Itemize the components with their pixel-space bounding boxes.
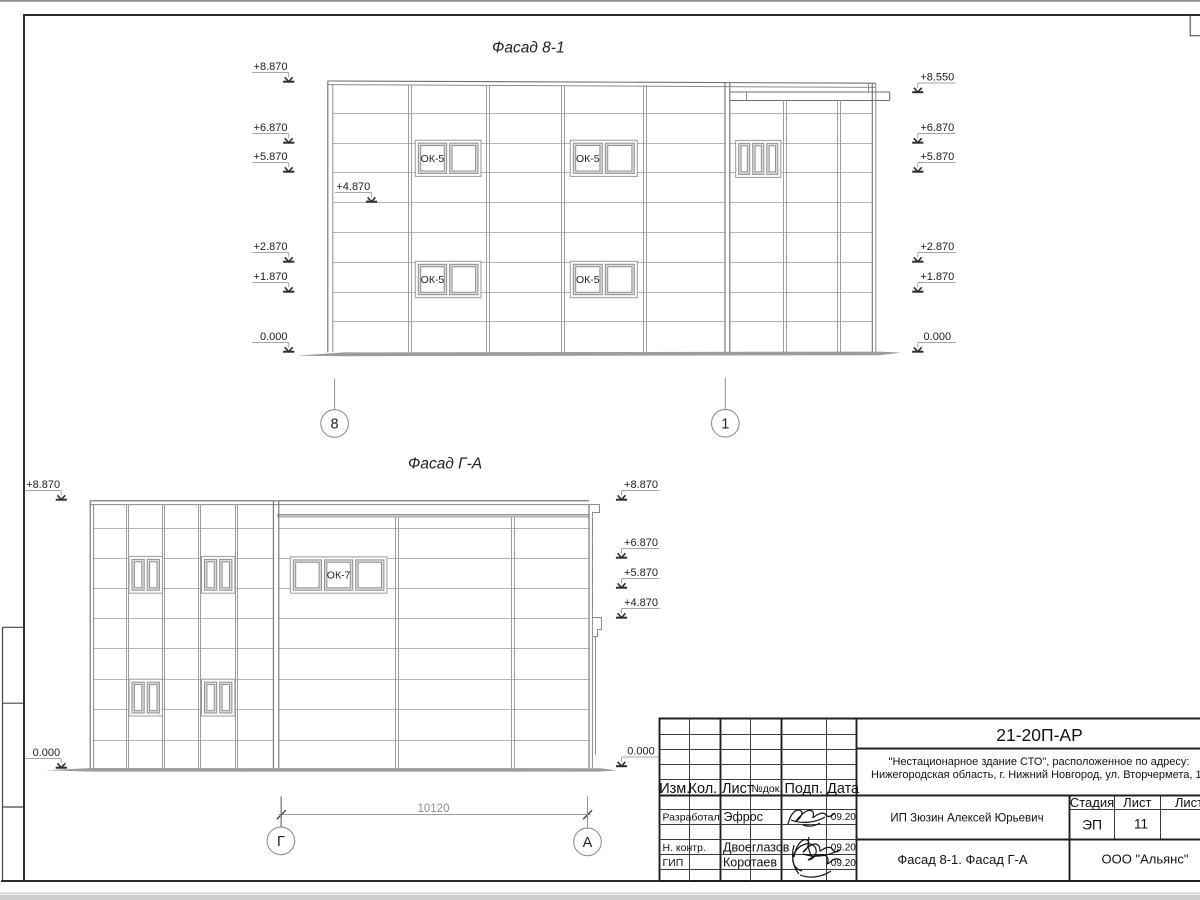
svg-text:ООО "Альянс": ООО "Альянс" (1102, 852, 1189, 867)
svg-text:Коротаев: Коротаев (723, 856, 777, 870)
svg-text:Дата: Дата (827, 781, 860, 797)
svg-text:Кол.: Кол. (689, 781, 718, 797)
svg-text:ОК-5: ОК-5 (421, 274, 445, 286)
svg-text:Г: Г (277, 834, 285, 850)
svg-text:0.000: 0.000 (627, 745, 655, 757)
svg-text:ОК-5: ОК-5 (576, 153, 600, 165)
svg-text:1: 1 (721, 416, 729, 432)
svg-text:Лист: Лист (722, 781, 754, 797)
svg-text:0.000: 0.000 (924, 331, 952, 343)
svg-text:Фасад 8-1: Фасад 8-1 (492, 40, 565, 57)
svg-text:ОК-5: ОК-5 (421, 153, 445, 165)
svg-text:Двоеглазов: Двоеглазов (723, 841, 790, 855)
svg-text:+4.870: +4.870 (336, 181, 370, 193)
svg-text:+8.550: +8.550 (920, 71, 954, 83)
svg-text:+8.870: +8.870 (26, 479, 60, 491)
svg-text:10120: 10120 (418, 803, 450, 815)
svg-text:Стадия: Стадия (1070, 795, 1114, 810)
svg-text:"Нестационарное здание СТО", р: "Нестационарное здание СТО", расположенн… (889, 756, 1190, 768)
svg-text:ГИП: ГИП (663, 857, 684, 869)
svg-text:+6.870: +6.870 (254, 122, 288, 134)
svg-text:+5.870: +5.870 (254, 151, 288, 163)
svg-text:8: 8 (331, 417, 339, 433)
svg-text:Листов: Листов (1175, 795, 1200, 810)
svg-text:Лист: Лист (1123, 795, 1151, 810)
svg-text:+8.870: +8.870 (624, 479, 658, 491)
svg-text:+5.870: +5.870 (624, 567, 658, 579)
svg-text:Изм.: Изм. (659, 781, 690, 797)
svg-text:Нижегородская область, г. Нижн: Нижегородская область, г. Нижний Новгоро… (871, 769, 1200, 781)
svg-text:Фасад 8-1. Фасад Г-А: Фасад 8-1. Фасад Г-А (897, 852, 1027, 867)
svg-text:ЭП: ЭП (1082, 817, 1102, 833)
svg-text:Н. контр.: Н. контр. (663, 842, 706, 854)
svg-text:+4.870: +4.870 (624, 597, 658, 609)
svg-text:ИП Зюзин Алексей Юрьевич: ИП Зюзин Алексей Юрьевич (890, 812, 1043, 824)
svg-text:+2.870: +2.870 (254, 241, 288, 253)
svg-text:ОК-7: ОК-7 (327, 570, 351, 582)
svg-text:+8.870: +8.870 (254, 61, 288, 73)
svg-text:Эфрос: Эфрос (724, 810, 763, 824)
svg-text:+6.870: +6.870 (624, 537, 658, 549)
svg-text:+2.870: +2.870 (920, 241, 954, 253)
svg-text:+1.870: +1.870 (254, 271, 288, 283)
svg-text:0.000: 0.000 (260, 331, 288, 343)
svg-text:+5.870: +5.870 (920, 151, 954, 163)
svg-text:Разработал: Разработал (663, 812, 720, 824)
svg-text:11: 11 (1134, 817, 1148, 832)
svg-text:ОК-5: ОК-5 (576, 274, 600, 286)
svg-text:№док.: №док. (752, 783, 783, 795)
svg-text:Фасад Г-А: Фасад Г-А (408, 456, 482, 473)
svg-text:+1.870: +1.870 (920, 271, 954, 283)
svg-text:21-20П-АР: 21-20П-АР (996, 725, 1083, 745)
svg-text:А: А (583, 835, 593, 851)
svg-text:Подп.: Подп. (785, 781, 824, 797)
svg-text:0.000: 0.000 (33, 747, 61, 759)
svg-text:+6.870: +6.870 (920, 122, 954, 134)
